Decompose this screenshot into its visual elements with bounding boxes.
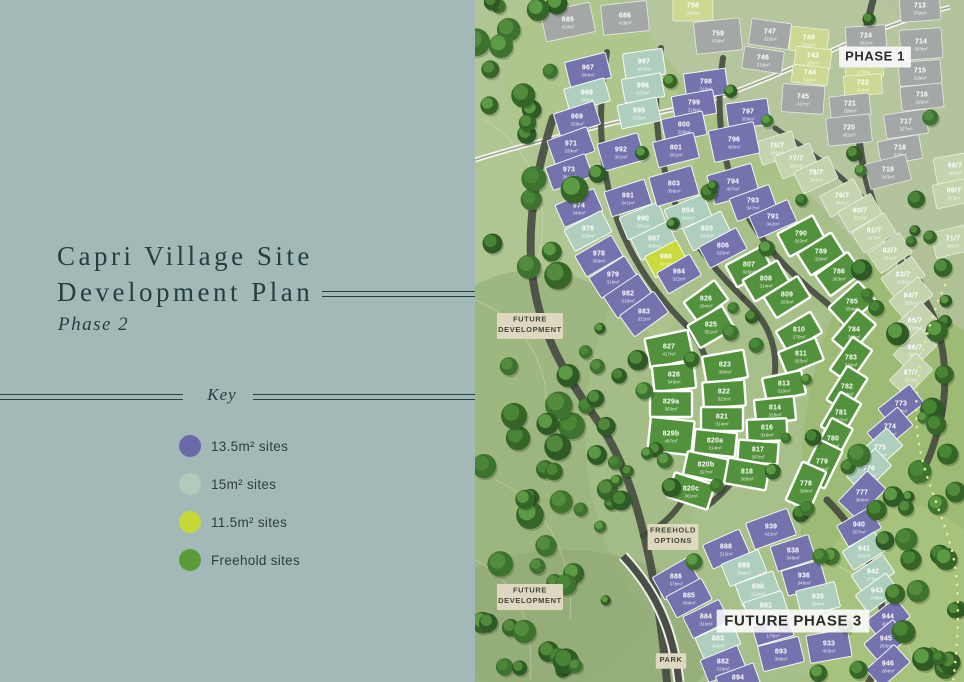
svg-text:270m²: 270m² bbox=[857, 70, 870, 75]
svg-text:82/7: 82/7 bbox=[883, 248, 897, 255]
lot-818: 818368m² bbox=[724, 458, 770, 491]
svg-text:783: 783 bbox=[845, 355, 857, 362]
phase-subtitle: Phase 2 bbox=[58, 314, 129, 336]
lot-829a: 829a350m² bbox=[650, 391, 692, 417]
svg-text:351m²: 351m² bbox=[704, 330, 717, 335]
svg-text:780: 780 bbox=[827, 436, 839, 443]
svg-text:264m²: 264m² bbox=[856, 88, 869, 93]
svg-text:722: 722 bbox=[857, 80, 869, 87]
svg-text:315m²: 315m² bbox=[904, 301, 917, 306]
svg-text:987: 987 bbox=[648, 236, 660, 243]
svg-text:813: 813 bbox=[778, 381, 790, 388]
svg-text:794: 794 bbox=[727, 179, 739, 186]
svg-text:942: 942 bbox=[867, 569, 879, 576]
svg-text:327m²: 327m² bbox=[699, 470, 712, 475]
svg-text:825: 825 bbox=[705, 322, 717, 329]
svg-text:800: 800 bbox=[678, 122, 690, 129]
svg-text:785: 785 bbox=[846, 299, 858, 306]
svg-text:799: 799 bbox=[688, 100, 700, 107]
svg-text:325m²: 325m² bbox=[794, 359, 807, 364]
svg-text:782: 782 bbox=[841, 384, 853, 391]
lot-722: 722264m² bbox=[843, 74, 882, 97]
svg-text:318m²: 318m² bbox=[716, 667, 729, 672]
svg-text:343m²: 343m² bbox=[881, 175, 894, 180]
svg-text:786: 786 bbox=[833, 269, 845, 276]
lot-713: 713378m² bbox=[899, 0, 941, 22]
svg-text:319m²: 319m² bbox=[606, 280, 619, 285]
svg-text:291m²: 291m² bbox=[789, 164, 802, 169]
svg-text:944: 944 bbox=[882, 614, 894, 621]
svg-text:365m²: 365m² bbox=[647, 244, 660, 249]
title-line-2: Development Plan bbox=[57, 274, 313, 310]
svg-text:316m²: 316m² bbox=[751, 592, 764, 597]
svg-text:178m²: 178m² bbox=[766, 634, 779, 639]
svg-text:816: 816 bbox=[761, 425, 773, 432]
region-label-park: PARK bbox=[656, 653, 686, 669]
svg-text:FUTURE PHASE 3: FUTURE PHASE 3 bbox=[724, 613, 862, 630]
svg-text:381m²: 381m² bbox=[946, 244, 959, 249]
svg-text:417m²: 417m² bbox=[662, 352, 675, 357]
svg-text:314m²: 314m² bbox=[759, 284, 772, 289]
svg-text:77/7: 77/7 bbox=[789, 156, 803, 163]
svg-text:289m²: 289m² bbox=[737, 571, 750, 576]
title-line-1: Capri Village Site bbox=[57, 238, 313, 274]
svg-text:370m²: 370m² bbox=[636, 91, 649, 96]
legend-swatch-purple bbox=[179, 435, 201, 457]
svg-text:223m²: 223m² bbox=[686, 11, 699, 16]
legend-label: 11.5m² sites bbox=[211, 515, 287, 530]
svg-text:349m²: 349m² bbox=[572, 211, 585, 216]
svg-text:284m²: 284m² bbox=[881, 669, 894, 674]
svg-text:747: 747 bbox=[764, 29, 776, 36]
region-label-future: FUTUREDEVELOPMENT bbox=[497, 313, 563, 339]
region-label-freehold: FREEHOLDOPTIONS bbox=[648, 524, 699, 550]
lot-758: 758223m² bbox=[673, 0, 713, 21]
region-label-future-phase-3: FUTURE PHASE 3 bbox=[717, 610, 870, 633]
svg-text:384m²: 384m² bbox=[811, 602, 824, 607]
svg-text:339m²: 339m² bbox=[570, 122, 583, 127]
svg-text:309m²: 309m² bbox=[741, 117, 754, 122]
svg-text:940: 940 bbox=[853, 522, 865, 529]
svg-text:745: 745 bbox=[797, 94, 809, 101]
svg-text:803: 803 bbox=[668, 181, 680, 188]
svg-text:320m²: 320m² bbox=[814, 257, 827, 262]
svg-text:885: 885 bbox=[683, 593, 695, 600]
legend-label: Freehold sites bbox=[211, 553, 300, 568]
svg-text:368m²: 368m² bbox=[740, 477, 753, 482]
svg-text:798: 798 bbox=[700, 79, 712, 86]
region-label-future: FUTUREDEVELOPMENT bbox=[497, 584, 563, 610]
legend-label: 13.5m² sites bbox=[211, 439, 288, 454]
svg-text:310m²: 310m² bbox=[699, 622, 712, 627]
region-label-phase-1: PHASE 1 bbox=[839, 47, 911, 68]
svg-text:476m²: 476m² bbox=[711, 39, 724, 44]
svg-text:884: 884 bbox=[700, 614, 712, 621]
svg-text:820c: 820c bbox=[683, 486, 699, 493]
legend-item-15: 15m² sites bbox=[179, 472, 300, 496]
svg-text:493m²: 493m² bbox=[727, 145, 740, 150]
svg-text:422m²: 422m² bbox=[764, 532, 777, 537]
svg-text:793: 793 bbox=[747, 198, 759, 205]
svg-text:889: 889 bbox=[738, 563, 750, 570]
svg-text:316m²: 316m² bbox=[760, 433, 773, 438]
svg-text:350m²: 350m² bbox=[664, 407, 677, 412]
svg-text:322m²: 322m² bbox=[672, 277, 685, 282]
svg-text:323m²: 323m² bbox=[947, 196, 960, 201]
svg-text:298m²: 298m² bbox=[843, 109, 856, 114]
svg-text:DEVELOPMENT: DEVELOPMENT bbox=[498, 325, 562, 334]
svg-text:257m²: 257m² bbox=[852, 530, 865, 535]
svg-text:86/7: 86/7 bbox=[908, 345, 922, 352]
svg-text:313m²: 313m² bbox=[719, 552, 732, 557]
svg-text:938: 938 bbox=[787, 548, 799, 555]
svg-text:978: 978 bbox=[593, 251, 605, 258]
svg-text:822: 822 bbox=[718, 389, 730, 396]
svg-text:384m²: 384m² bbox=[855, 498, 868, 503]
svg-text:OPTIONS: OPTIONS bbox=[654, 536, 692, 545]
svg-text:713: 713 bbox=[914, 3, 926, 10]
svg-text:991: 991 bbox=[622, 193, 634, 200]
svg-text:85/7: 85/7 bbox=[908, 318, 922, 325]
svg-text:381m²: 381m² bbox=[948, 171, 961, 176]
svg-text:347m²: 347m² bbox=[746, 206, 759, 211]
svg-text:318m²: 318m² bbox=[768, 413, 781, 418]
svg-text:361m²: 361m² bbox=[669, 153, 682, 158]
svg-text:796: 796 bbox=[728, 137, 740, 144]
svg-text:346m²: 346m² bbox=[797, 581, 810, 586]
lot-686: 686418m² bbox=[601, 1, 650, 36]
svg-text:888: 888 bbox=[720, 544, 732, 551]
legend: 13.5m² sites 15m² sites 11.5m² sites Fre… bbox=[179, 434, 300, 586]
svg-text:294m²: 294m² bbox=[809, 178, 822, 183]
svg-text:319m²: 319m² bbox=[777, 389, 790, 394]
svg-text:715: 715 bbox=[914, 68, 926, 75]
svg-text:317m²: 317m² bbox=[867, 236, 880, 241]
lot-759: 759476m² bbox=[693, 18, 742, 55]
svg-text:396m²: 396m² bbox=[667, 189, 680, 194]
svg-text:PHASE 1: PHASE 1 bbox=[845, 49, 905, 64]
lot-716: 716326m² bbox=[900, 83, 944, 111]
svg-text:718: 718 bbox=[894, 145, 906, 152]
site-plan-page: Capri Village Site Development Plan Phas… bbox=[0, 0, 964, 682]
svg-text:967: 967 bbox=[582, 65, 594, 72]
svg-text:378m²: 378m² bbox=[669, 582, 682, 587]
svg-text:497m²: 497m² bbox=[664, 439, 677, 444]
site-map-svg: 685410m²686418m²758223m²759476m²747323m²… bbox=[475, 0, 964, 682]
svg-text:322m²: 322m² bbox=[637, 317, 650, 322]
svg-text:78/7: 78/7 bbox=[809, 170, 823, 177]
svg-text:323m²: 323m² bbox=[581, 234, 594, 239]
svg-text:363m²: 363m² bbox=[832, 277, 845, 282]
svg-text:346m²: 346m² bbox=[700, 234, 713, 239]
svg-text:936: 936 bbox=[798, 573, 810, 580]
svg-text:971: 971 bbox=[565, 141, 577, 148]
svg-text:984: 984 bbox=[673, 269, 685, 276]
svg-text:331m²: 331m² bbox=[859, 41, 872, 46]
svg-text:276m²: 276m² bbox=[792, 335, 805, 340]
svg-text:883: 883 bbox=[712, 636, 724, 643]
svg-text:820a: 820a bbox=[707, 438, 723, 445]
svg-text:827: 827 bbox=[663, 344, 675, 351]
svg-text:893: 893 bbox=[775, 649, 787, 656]
svg-text:997: 997 bbox=[638, 59, 650, 66]
svg-text:284m²: 284m² bbox=[699, 304, 712, 309]
legend-item-freehold: Freehold sites bbox=[179, 548, 300, 572]
key-rule-left bbox=[0, 394, 183, 400]
svg-text:721: 721 bbox=[844, 101, 856, 108]
legend-swatch-yellow bbox=[179, 511, 201, 533]
svg-text:378m²: 378m² bbox=[913, 11, 926, 16]
svg-text:996: 996 bbox=[637, 83, 649, 90]
svg-text:759: 759 bbox=[712, 31, 724, 38]
svg-text:758: 758 bbox=[687, 3, 699, 10]
svg-text:990: 990 bbox=[637, 216, 649, 223]
svg-text:969: 969 bbox=[571, 114, 583, 121]
svg-text:248m²: 248m² bbox=[870, 596, 883, 601]
legend-swatch-green bbox=[179, 549, 201, 571]
svg-text:818: 818 bbox=[741, 469, 753, 476]
lot-744: 744195m² bbox=[791, 64, 829, 86]
svg-text:PARK: PARK bbox=[659, 655, 682, 664]
svg-text:FREEHOLD: FREEHOLD bbox=[650, 526, 696, 535]
svg-text:300m²: 300m² bbox=[806, 61, 819, 66]
svg-text:327m²: 327m² bbox=[899, 127, 912, 132]
svg-text:933: 933 bbox=[823, 641, 835, 648]
svg-text:797: 797 bbox=[742, 109, 754, 116]
svg-text:986: 986 bbox=[660, 254, 672, 261]
legend-label: 15m² sites bbox=[211, 477, 276, 492]
svg-text:992: 992 bbox=[615, 147, 627, 154]
svg-text:87/7: 87/7 bbox=[904, 370, 918, 377]
svg-text:390m²: 390m² bbox=[799, 489, 812, 494]
svg-text:318m²: 318m² bbox=[896, 280, 909, 285]
svg-text:363m²: 363m² bbox=[637, 67, 650, 72]
svg-text:341m²: 341m² bbox=[621, 201, 634, 206]
svg-text:995: 995 bbox=[633, 108, 645, 115]
svg-text:894: 894 bbox=[732, 675, 744, 682]
svg-text:327m²: 327m² bbox=[853, 216, 866, 221]
svg-text:748: 748 bbox=[803, 35, 815, 42]
svg-text:814: 814 bbox=[769, 405, 781, 412]
svg-text:685: 685 bbox=[562, 17, 574, 24]
legend-item-13-5: 13.5m² sites bbox=[179, 434, 300, 458]
legend-item-11-5: 11.5m² sites bbox=[179, 510, 300, 534]
svg-text:195m²: 195m² bbox=[803, 78, 816, 83]
svg-text:68/7: 68/7 bbox=[948, 163, 962, 170]
svg-text:325m²: 325m² bbox=[717, 397, 730, 402]
svg-text:717: 717 bbox=[900, 119, 912, 126]
svg-text:968: 968 bbox=[581, 90, 593, 97]
svg-text:801: 801 bbox=[670, 145, 682, 152]
svg-text:364m²: 364m² bbox=[581, 73, 594, 78]
svg-text:808: 808 bbox=[760, 276, 772, 283]
svg-text:369m²: 369m² bbox=[592, 259, 605, 264]
svg-text:784: 784 bbox=[848, 327, 860, 334]
svg-text:DEVELOPMENT: DEVELOPMENT bbox=[498, 596, 562, 605]
svg-text:326m²: 326m² bbox=[915, 100, 928, 105]
svg-text:417m²: 417m² bbox=[796, 102, 809, 107]
svg-text:720: 720 bbox=[843, 125, 855, 132]
svg-text:941: 941 bbox=[858, 546, 870, 553]
svg-text:935: 935 bbox=[812, 594, 824, 601]
svg-text:810: 810 bbox=[793, 327, 805, 334]
svg-text:791: 791 bbox=[767, 214, 779, 221]
lot-720: 720452m² bbox=[826, 114, 873, 146]
svg-text:826: 826 bbox=[700, 296, 712, 303]
svg-text:817: 817 bbox=[752, 447, 764, 454]
svg-text:979: 979 bbox=[607, 272, 619, 279]
svg-text:403m²: 403m² bbox=[822, 649, 835, 654]
svg-text:807: 807 bbox=[743, 262, 755, 269]
svg-text:323m²: 323m² bbox=[794, 239, 807, 244]
svg-text:790: 790 bbox=[795, 231, 807, 238]
svg-text:891: 891 bbox=[760, 603, 772, 610]
svg-text:331m²: 331m² bbox=[636, 224, 649, 229]
svg-text:80/7: 80/7 bbox=[853, 208, 867, 215]
svg-text:399m²: 399m² bbox=[718, 370, 731, 375]
svg-text:719: 719 bbox=[882, 167, 894, 174]
svg-text:321m²: 321m² bbox=[883, 256, 896, 261]
svg-text:773: 773 bbox=[895, 401, 907, 408]
svg-text:349m²: 349m² bbox=[667, 380, 680, 385]
svg-text:314m²: 314m² bbox=[715, 422, 728, 427]
svg-text:452m²: 452m² bbox=[842, 133, 855, 138]
svg-text:71/7: 71/7 bbox=[946, 236, 960, 243]
svg-text:973: 973 bbox=[563, 167, 575, 174]
svg-text:307m²: 307m² bbox=[751, 455, 764, 460]
svg-text:716: 716 bbox=[916, 92, 928, 99]
svg-text:886: 886 bbox=[670, 574, 682, 581]
svg-text:407m²: 407m² bbox=[726, 187, 739, 192]
svg-text:FUTURE: FUTURE bbox=[513, 315, 547, 324]
svg-text:882: 882 bbox=[717, 659, 729, 666]
svg-text:342m²: 342m² bbox=[766, 222, 779, 227]
svg-text:69/7: 69/7 bbox=[947, 188, 961, 195]
svg-text:83/7: 83/7 bbox=[896, 272, 910, 279]
svg-text:811: 811 bbox=[795, 351, 807, 358]
site-map: 685410m²686418m²758223m²759476m²747323m²… bbox=[475, 0, 964, 682]
svg-text:781: 781 bbox=[835, 410, 847, 417]
svg-text:346m²: 346m² bbox=[786, 556, 799, 561]
svg-text:361m²: 361m² bbox=[684, 494, 697, 499]
svg-text:396m²: 396m² bbox=[774, 657, 787, 662]
svg-text:84/7: 84/7 bbox=[904, 293, 918, 300]
svg-text:804: 804 bbox=[682, 208, 694, 215]
svg-text:789: 789 bbox=[815, 249, 827, 256]
svg-text:828: 828 bbox=[668, 372, 680, 379]
svg-text:809: 809 bbox=[781, 292, 793, 299]
svg-text:829b: 829b bbox=[663, 431, 680, 438]
svg-text:376m²: 376m² bbox=[756, 63, 769, 68]
lot-822: 822325m² bbox=[702, 380, 746, 409]
svg-text:350m²: 350m² bbox=[914, 47, 927, 52]
lot-747: 747323m² bbox=[748, 18, 791, 49]
svg-text:339m²: 339m² bbox=[564, 149, 577, 154]
svg-text:823: 823 bbox=[719, 362, 731, 369]
svg-text:777: 777 bbox=[856, 490, 868, 497]
svg-text:410m²: 410m² bbox=[561, 25, 574, 30]
svg-text:81/7: 81/7 bbox=[867, 228, 881, 235]
svg-text:FUTURE: FUTURE bbox=[513, 586, 547, 595]
info-panel: Capri Village Site Development Plan Phas… bbox=[0, 0, 475, 682]
svg-text:744: 744 bbox=[804, 70, 816, 77]
key-heading-row: Key bbox=[0, 385, 475, 409]
title-double-rule bbox=[322, 291, 475, 297]
svg-text:323m²: 323m² bbox=[763, 37, 776, 42]
svg-text:79/7: 79/7 bbox=[835, 193, 849, 200]
svg-text:821: 821 bbox=[716, 414, 728, 421]
key-heading: Key bbox=[196, 385, 248, 405]
svg-text:319m²: 319m² bbox=[913, 76, 926, 81]
svg-text:341m²: 341m² bbox=[681, 216, 694, 221]
svg-text:714: 714 bbox=[915, 39, 927, 46]
lot-821: 821314m² bbox=[701, 407, 743, 431]
svg-text:76/7: 76/7 bbox=[770, 143, 784, 150]
svg-text:746: 746 bbox=[757, 55, 769, 62]
svg-text:983: 983 bbox=[638, 309, 650, 316]
svg-text:316m²: 316m² bbox=[621, 299, 634, 304]
svg-text:418m²: 418m² bbox=[618, 21, 631, 26]
svg-text:806: 806 bbox=[717, 243, 729, 250]
svg-text:346m²: 346m² bbox=[711, 644, 724, 649]
svg-text:327m²: 327m² bbox=[904, 378, 917, 383]
svg-text:778: 778 bbox=[800, 481, 812, 488]
svg-text:293m²: 293m² bbox=[780, 300, 793, 305]
svg-text:890: 890 bbox=[752, 584, 764, 591]
svg-text:946: 946 bbox=[882, 661, 894, 668]
svg-text:743: 743 bbox=[807, 53, 819, 60]
svg-text:779: 779 bbox=[816, 459, 828, 466]
svg-text:945: 945 bbox=[880, 636, 892, 643]
svg-text:976: 976 bbox=[582, 226, 594, 233]
svg-text:724: 724 bbox=[860, 33, 872, 40]
lot-745: 745417m² bbox=[781, 84, 825, 115]
svg-text:939: 939 bbox=[765, 524, 777, 531]
svg-text:982: 982 bbox=[622, 291, 634, 298]
svg-text:304m²: 304m² bbox=[682, 601, 695, 606]
svg-text:805: 805 bbox=[701, 226, 713, 233]
svg-text:361m²: 361m² bbox=[614, 155, 627, 160]
svg-text:686: 686 bbox=[619, 13, 631, 20]
svg-text:315m²: 315m² bbox=[632, 116, 645, 121]
svg-text:829a: 829a bbox=[663, 399, 679, 406]
page-title: Capri Village Site Development Plan bbox=[57, 238, 313, 310]
svg-text:820b: 820b bbox=[698, 462, 715, 469]
key-rule-right bbox=[253, 394, 475, 400]
svg-text:943: 943 bbox=[871, 588, 883, 595]
svg-text:307m²: 307m² bbox=[835, 201, 848, 206]
legend-swatch-teal bbox=[179, 473, 201, 495]
svg-text:222m²: 222m² bbox=[857, 554, 870, 559]
svg-text:314m²: 314m² bbox=[708, 446, 721, 451]
svg-text:320m²: 320m² bbox=[716, 251, 729, 256]
